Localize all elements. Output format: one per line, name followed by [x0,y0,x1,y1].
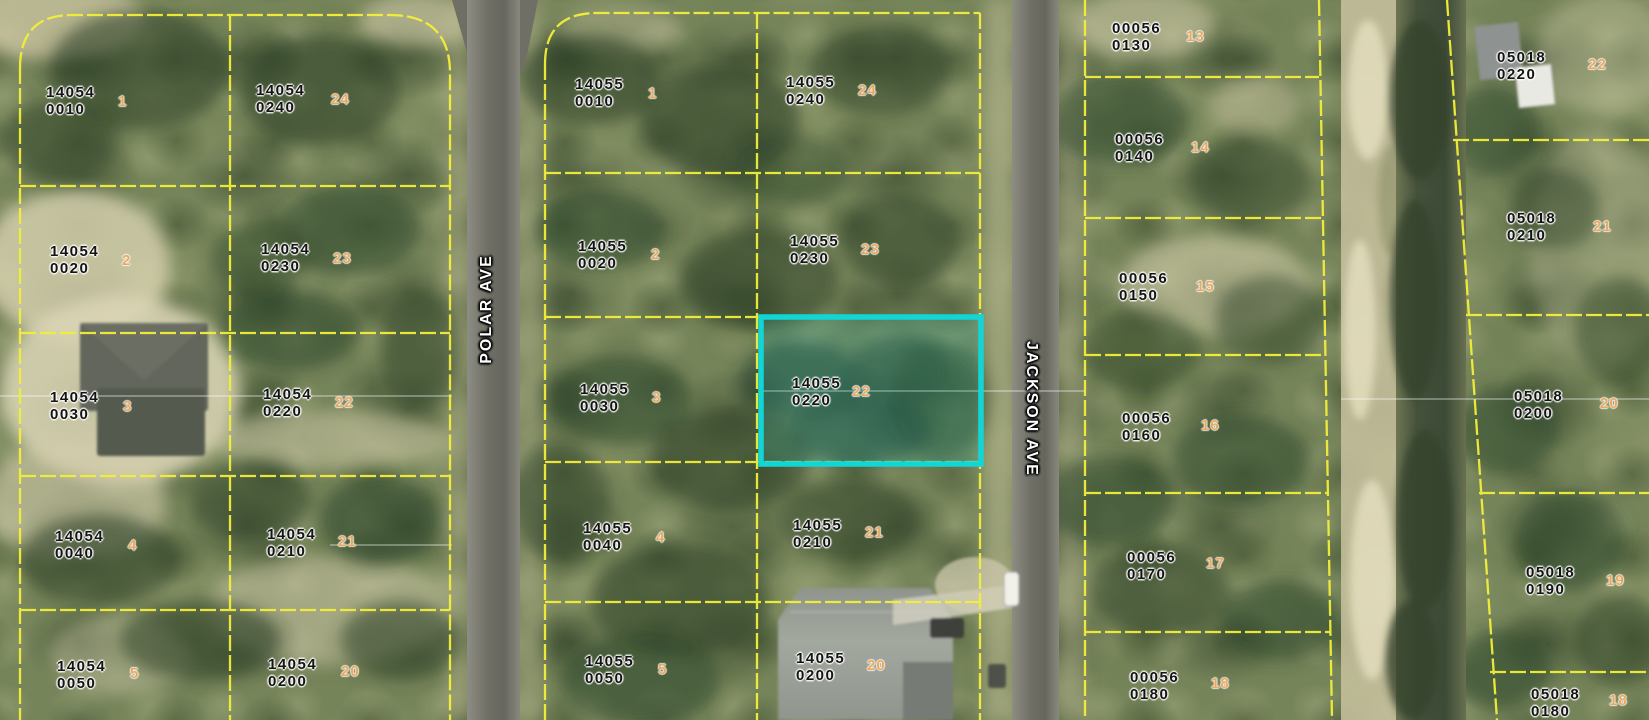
lot-number-14054-0040: 4 [128,537,137,554]
lot-number-00056-0180: 18 [1211,675,1230,692]
parcel-label-05018-0210: 050180210 [1507,210,1556,245]
lot-number-14055-0020: 2 [651,246,660,263]
parcel-label-00056-0150: 000560150 [1119,270,1168,305]
lot-number-14054-0020: 2 [122,252,131,269]
lot-number-14055-0240: 24 [858,82,877,99]
lot-number-14054-0240: 24 [331,91,350,108]
street-label-polar-ave: POLAR AVE [478,254,496,364]
parcel-label-05018-0180: 050180180 [1531,686,1580,720]
parcel-label-14055-0210: 140550210 [793,517,842,552]
parcel-label-14055-0050: 140550050 [585,653,634,688]
parcel-label-14055-0040: 140550040 [583,520,632,555]
street-label-jackson-ave: JACKSON AVE [1022,341,1040,473]
lot-number-05018-0220: 22 [1588,56,1607,73]
parcel-label-00056-0170: 000560170 [1127,549,1176,584]
parcel-label-00056-0130: 000560130 [1112,20,1161,55]
lot-number-14054-0050: 5 [130,665,139,682]
lot-number-14054-0200: 20 [341,663,360,680]
lot-number-05018-0190: 19 [1606,572,1625,589]
parcel-label-00056-0180: 000560180 [1130,669,1179,704]
parcel-label-14054-0230: 140540230 [261,241,310,276]
lot-number-14054-0220: 22 [335,394,354,411]
lot-number-14054-0030: 3 [123,398,132,415]
lot-number-14055-0050: 5 [658,661,667,678]
lot-number-14054-0230: 23 [333,250,352,267]
parcel-label-00056-0160: 000560160 [1122,410,1171,445]
lot-number-00056-0140: 14 [1191,139,1210,156]
parcel-label-00056-0140: 000560140 [1115,131,1164,166]
lot-number-14054-0210: 21 [338,533,357,550]
lot-number-00056-0150: 15 [1196,278,1215,295]
lot-number-00056-0160: 16 [1201,417,1220,434]
parcel-label-05018-0200: 050180200 [1514,388,1563,423]
lot-number-05018-0180: 18 [1609,692,1628,709]
lot-number-14055-0210: 21 [865,524,884,541]
lot-number-14055-0200: 20 [867,657,886,674]
lot-number-14055-0220: 22 [852,383,871,400]
parcel-label-14054-0040: 140540040 [55,528,104,563]
parcel-label-14055-0020: 140550020 [578,238,627,273]
parcel-label-14055-0220-highlighted: 140550220 [792,375,841,410]
lot-number-14055-0230: 23 [861,241,880,258]
lot-number-14055-0030: 3 [652,389,661,406]
lot-number-14054-0010: 1 [118,93,127,110]
parcel-label-14054-0220: 140540220 [263,386,312,421]
parcel-label-14055-0200: 140550200 [796,650,845,685]
lot-number-05018-0200: 20 [1600,395,1619,412]
parcel-label-14054-0240: 140540240 [256,82,305,117]
parcel-label-05018-0220: 050180220 [1497,49,1546,84]
lot-number-00056-0170: 17 [1206,555,1225,572]
parcel-label-14054-0050: 140540050 [57,658,106,693]
parcel-label-14055-0010: 140550010 [575,76,624,111]
parcel-label-14055-0240: 140550240 [786,74,835,109]
parcel-label-05018-0190: 050180190 [1526,564,1575,599]
lot-number-00056-0130: 13 [1186,28,1205,45]
lot-number-14055-0040: 4 [656,529,665,546]
parcel-label-14054-0200: 140540200 [268,656,317,691]
lot-number-05018-0210: 21 [1593,218,1612,235]
parcel-label-14055-0230: 140550230 [790,233,839,268]
parcel-label-14054-0210: 140540210 [267,526,316,561]
aerial-parcel-map[interactable]: 140540010 1 140540240 24 140540020 2 140… [0,0,1649,720]
parcel-label-14054-0020: 140540020 [50,243,99,278]
parcel-label-14054-0030: 140540030 [50,389,99,424]
parcel-label-14055-0030: 140550030 [580,381,629,416]
lot-number-14055-0010: 1 [648,85,657,102]
parcel-label-14054-0010: 140540010 [46,84,95,119]
